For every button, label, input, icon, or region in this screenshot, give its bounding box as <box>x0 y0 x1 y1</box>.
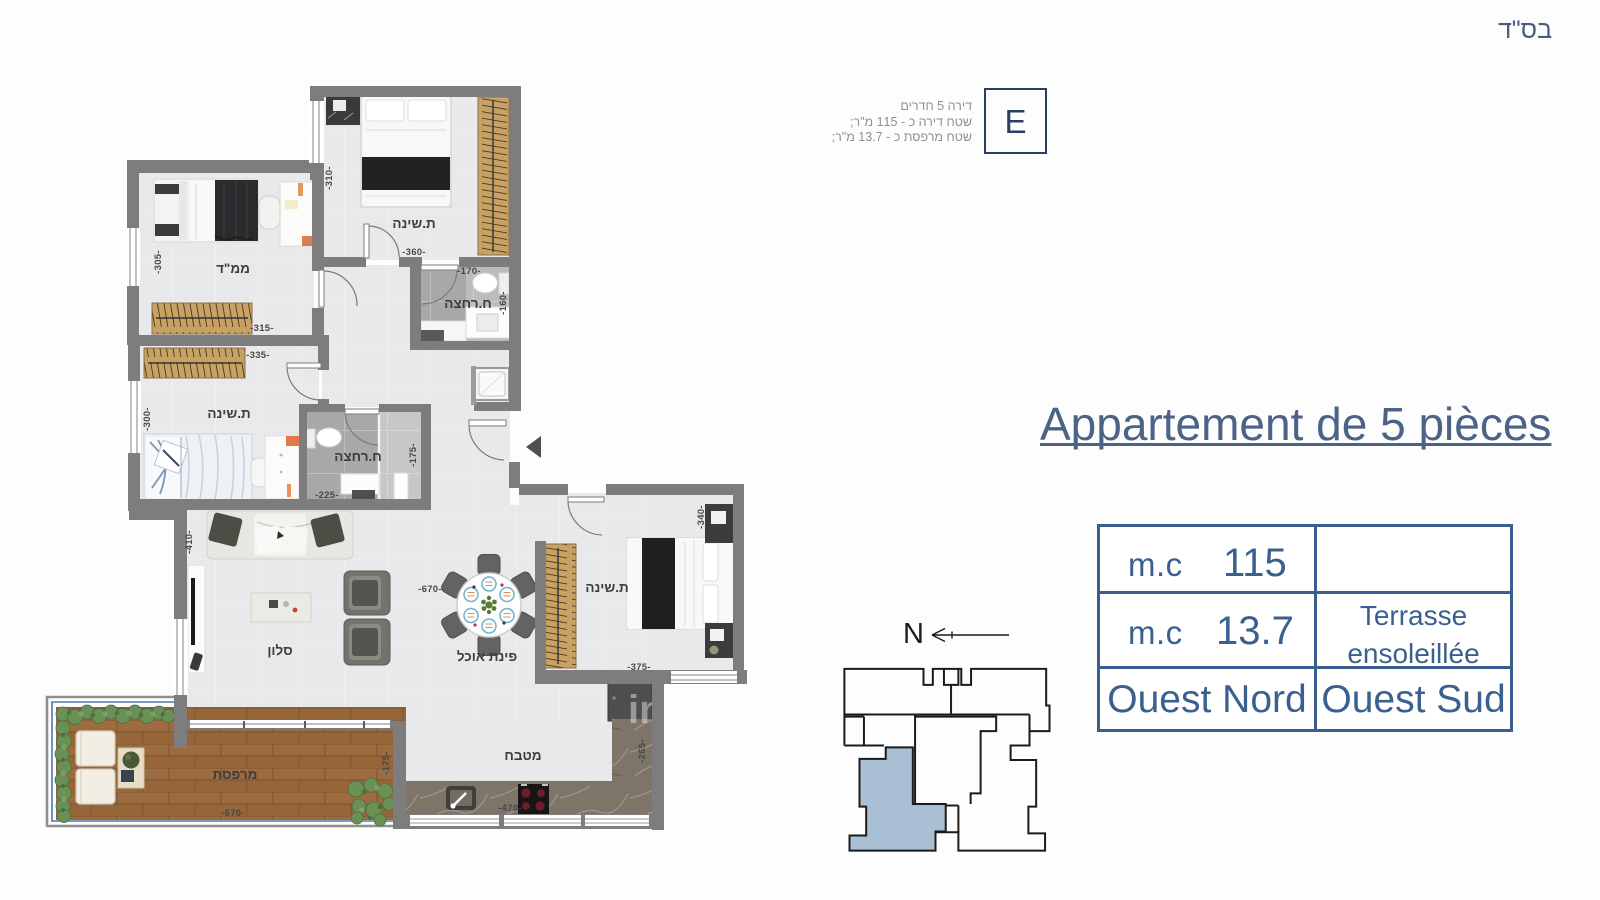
svg-text:פינת אוכל: פינת אוכל <box>457 649 518 664</box>
svg-text:-670-: -670- <box>221 808 245 819</box>
svg-text:-175-: -175- <box>408 443 419 467</box>
svg-text:N: N <box>903 618 924 650</box>
svg-text:סלון: סלון <box>267 643 292 658</box>
svg-text:-375-: -375- <box>627 662 651 673</box>
svg-text:מטבח: מטבח <box>504 748 541 763</box>
svg-text:-340-: -340- <box>696 505 707 529</box>
svg-text:מרפסת: מרפסת <box>213 767 258 782</box>
svg-text:-225-: -225- <box>315 490 339 501</box>
svg-text:ממ"ד: ממ"ד <box>216 261 250 276</box>
svg-text:-310-: -310- <box>324 166 335 190</box>
svg-text:-470-: -470- <box>498 803 522 814</box>
svg-text:-360-: -360- <box>402 247 426 258</box>
svg-text:-300-: -300- <box>142 407 153 431</box>
svg-text:-265-: -265- <box>637 739 648 763</box>
svg-text:-160-: -160- <box>498 291 509 315</box>
svg-text:-670-: -670- <box>418 584 442 595</box>
svg-text:-305-: -305- <box>153 250 164 274</box>
svg-text:-315-: -315- <box>250 323 274 334</box>
svg-text:-170-: -170- <box>457 266 481 277</box>
svg-text:ח.רחצה: ח.רחצה <box>334 449 381 464</box>
svg-text:ת.שינה: ת.שינה <box>207 406 250 421</box>
svg-text:ת.שינה: ת.שינה <box>392 216 435 231</box>
svg-text:ת.שינה: ת.שינה <box>585 580 628 595</box>
svg-text:-410-: -410- <box>184 530 195 554</box>
svg-text:-335-: -335- <box>246 350 270 361</box>
svg-text:-175-: -175- <box>381 751 392 775</box>
svg-text:ח.רחצה: ח.רחצה <box>444 296 491 311</box>
